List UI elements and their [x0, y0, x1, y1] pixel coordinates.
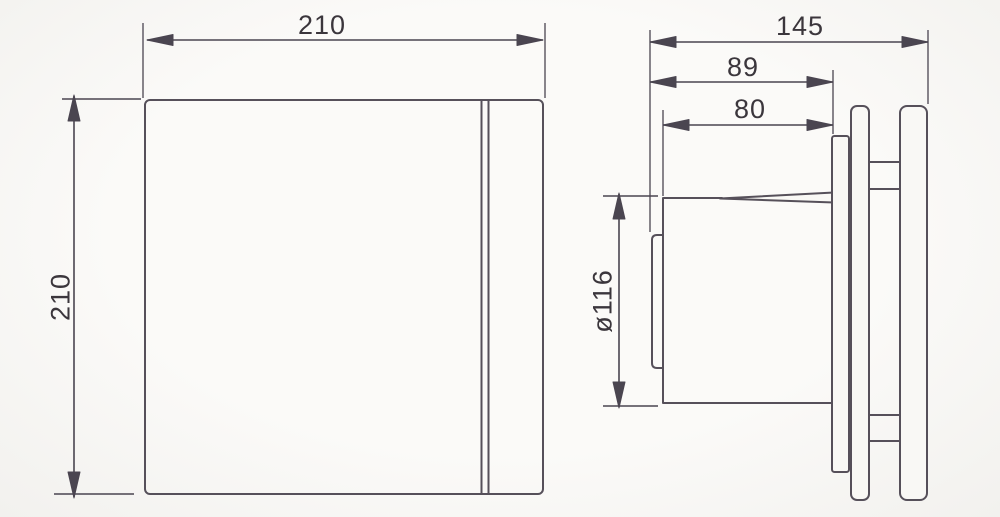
side-view — [652, 106, 927, 500]
front-width-dimension: 210 — [143, 10, 545, 98]
arrowhead-left — [663, 120, 689, 131]
arrowhead-right — [902, 37, 928, 48]
duct-lip — [652, 235, 663, 368]
mounting-plate — [832, 136, 849, 472]
shutter-blade — [720, 193, 834, 203]
front-panel — [900, 106, 927, 500]
arrowhead-right — [807, 77, 833, 88]
front-view — [145, 100, 543, 494]
dimension-label-total-depth: 145 — [776, 11, 824, 41]
drawing-canvas: 210 210 145 — [0, 0, 1000, 517]
duct-diameter-dimension: ø116 — [588, 193, 659, 408]
arrowhead-left — [147, 35, 173, 46]
technical-drawing: 210 210 145 — [0, 0, 1000, 517]
inner-frame — [851, 106, 869, 500]
dimension-label-front-width: 210 — [298, 10, 346, 40]
arrowhead-right — [517, 35, 543, 46]
arrowhead-down — [613, 382, 625, 408]
dimension-label-front-height: 210 — [46, 273, 76, 321]
arrowhead-left — [650, 37, 676, 48]
dimension-label-duct-diameter: ø116 — [588, 269, 618, 333]
duct-body-outline — [663, 198, 832, 403]
front-cover-outline — [145, 100, 543, 494]
dimension-label-plate-depth: 89 — [727, 52, 759, 82]
arrowhead-up — [613, 193, 625, 219]
arrowhead-right — [807, 120, 833, 131]
arrowhead-left — [650, 77, 676, 88]
front-height-dimension: 210 — [46, 95, 142, 498]
dimension-label-duct-length: 80 — [734, 94, 766, 124]
duct-length-dimension: 80 — [663, 94, 833, 196]
